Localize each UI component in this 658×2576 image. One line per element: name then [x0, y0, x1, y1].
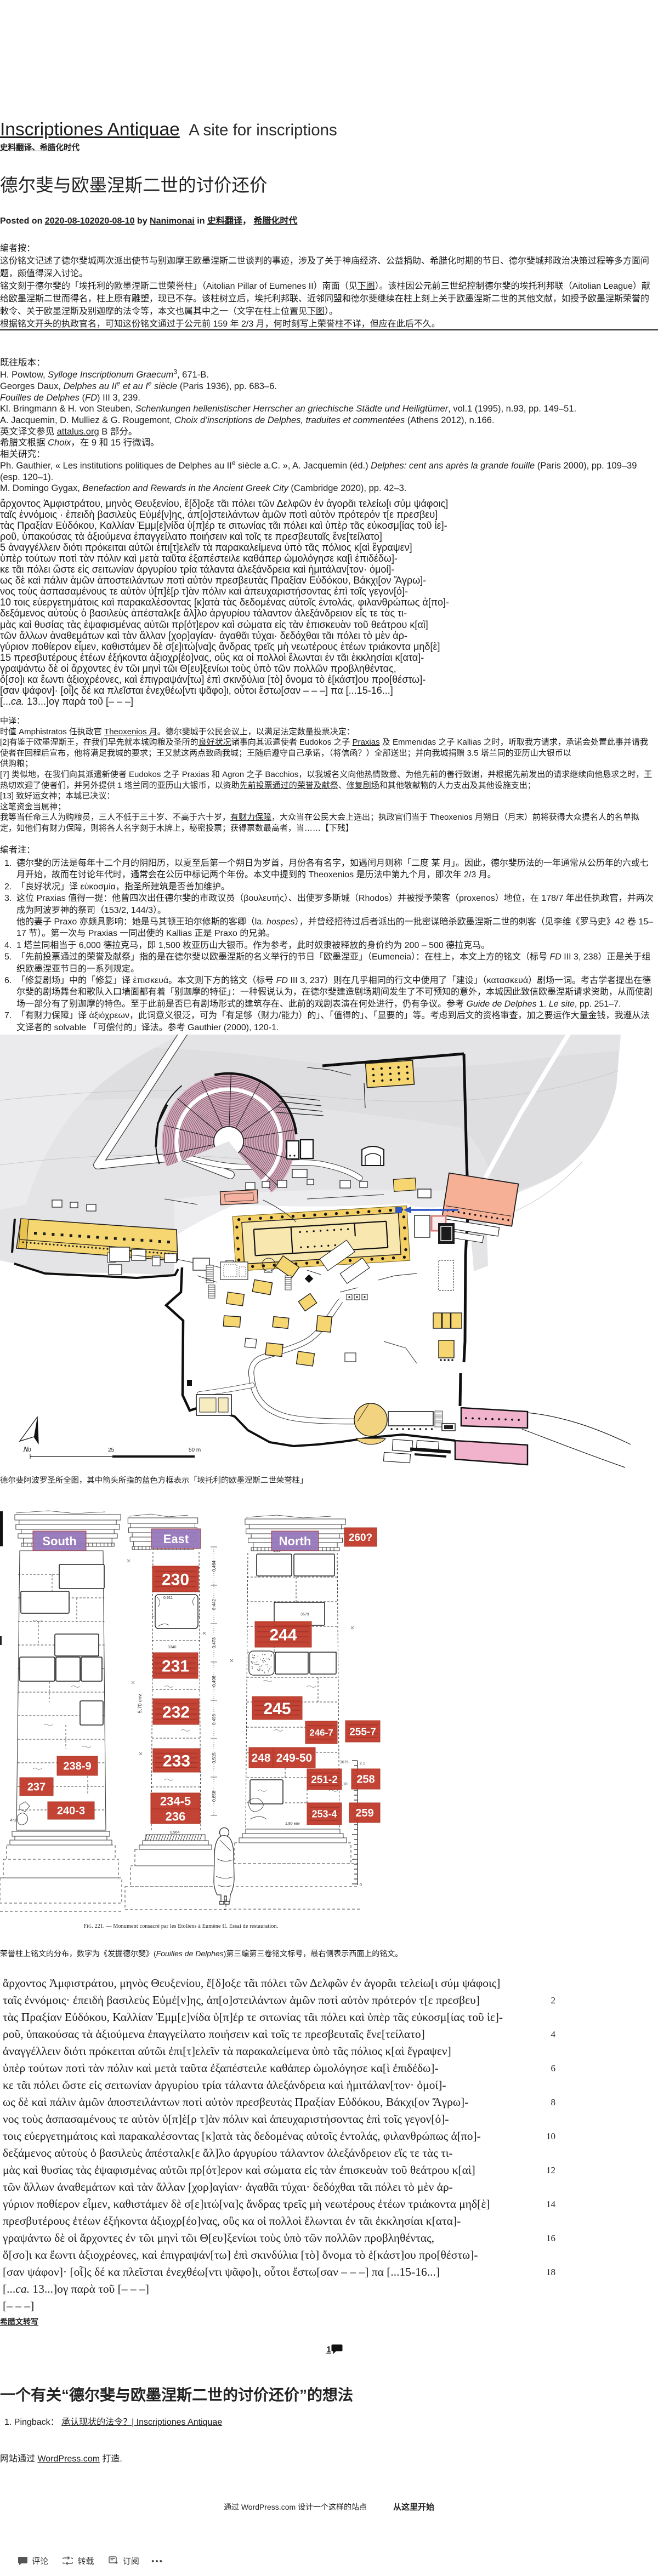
svg-text:50 m: 50 m — [189, 1447, 201, 1453]
svg-text:3340: 3340 — [168, 1646, 177, 1649]
svg-text:3675: 3675 — [340, 1761, 349, 1764]
svg-text:South: South — [42, 1534, 76, 1548]
svg-text:260?: 260? — [349, 1532, 372, 1544]
svg-text:251-2: 251-2 — [311, 1774, 338, 1786]
svg-text:3679: 3679 — [300, 1613, 309, 1617]
svg-text:2.1: 2.1 — [360, 1762, 365, 1766]
svg-text:253-4: 253-4 — [311, 1808, 337, 1819]
svg-text:0,464: 0,464 — [212, 1560, 217, 1572]
svg-text:0,911: 0,911 — [163, 1596, 173, 1600]
svg-text:0,964: 0,964 — [170, 1831, 180, 1835]
svg-text:237: 237 — [27, 1781, 46, 1794]
svg-text:25: 25 — [108, 1447, 115, 1453]
svg-text:0,515: 0,515 — [212, 1752, 217, 1763]
svg-text:0,496: 0,496 — [212, 1713, 217, 1725]
svg-text:246-7: 246-7 — [309, 1728, 333, 1738]
svg-text:5,70 env.: 5,70 env. — [137, 1693, 143, 1713]
svg-text:249-50: 249-50 — [276, 1752, 312, 1764]
svg-text:245: 245 — [263, 1700, 291, 1718]
svg-text:234-5: 234-5 — [160, 1794, 191, 1808]
svg-text:FIG. 221. — Monument consacré: FIG. 221. — Monument consacré par les Et… — [83, 1923, 278, 1929]
svg-text:0,658: 0,658 — [212, 1790, 217, 1802]
svg-text:East: East — [163, 1532, 189, 1546]
svg-text:231: 231 — [162, 1657, 189, 1675]
svg-text:0,496: 0,496 — [212, 1675, 217, 1687]
svg-text:236: 236 — [166, 1809, 186, 1823]
svg-text:0,442: 0,442 — [212, 1598, 217, 1610]
svg-text:0: 0 — [360, 1883, 362, 1887]
svg-text:255-7: 255-7 — [349, 1726, 376, 1738]
svg-text:0,473: 0,473 — [212, 1637, 217, 1648]
svg-text:244: 244 — [269, 1626, 297, 1644]
svg-text:259: 259 — [355, 1807, 373, 1819]
svg-text:232: 232 — [162, 1703, 190, 1721]
svg-text:233: 233 — [163, 1752, 190, 1770]
svg-text:1,80 env: 1,80 env — [285, 1822, 300, 1826]
svg-text:0: 0 — [28, 1447, 31, 1453]
svg-text:258: 258 — [356, 1774, 375, 1786]
svg-text:473: 473 — [10, 1819, 16, 1823]
svg-text:238-9: 238-9 — [63, 1761, 91, 1773]
svg-text:248: 248 — [251, 1752, 270, 1764]
svg-text:North: North — [279, 1534, 311, 1548]
svg-text:230: 230 — [162, 1570, 189, 1589]
svg-text:240-3: 240-3 — [57, 1805, 85, 1817]
